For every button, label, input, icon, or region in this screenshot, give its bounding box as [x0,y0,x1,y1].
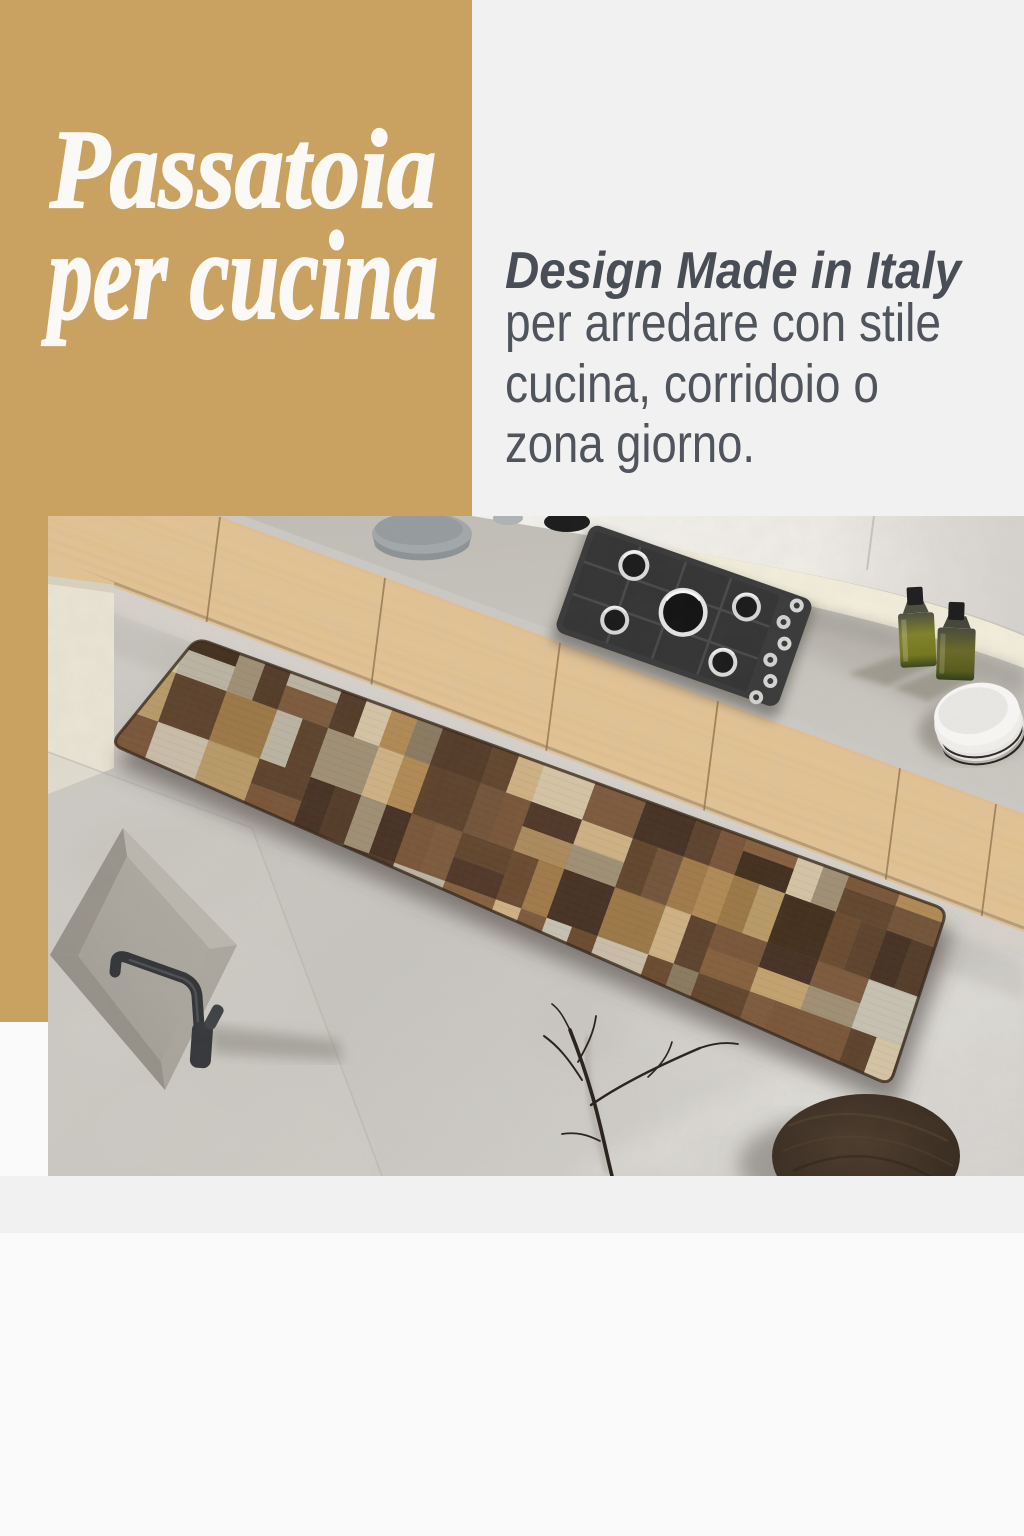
svg-text:per cucina: per cucina [42,207,438,346]
svg-text:cucina, corridoio o: cucina, corridoio o [505,354,879,414]
svg-text:zona giorno.: zona giorno. [505,414,755,474]
svg-text:Design Made in Italy: Design Made in Italy [505,242,964,300]
svg-text:per arredare con stile: per arredare con stile [505,293,941,353]
